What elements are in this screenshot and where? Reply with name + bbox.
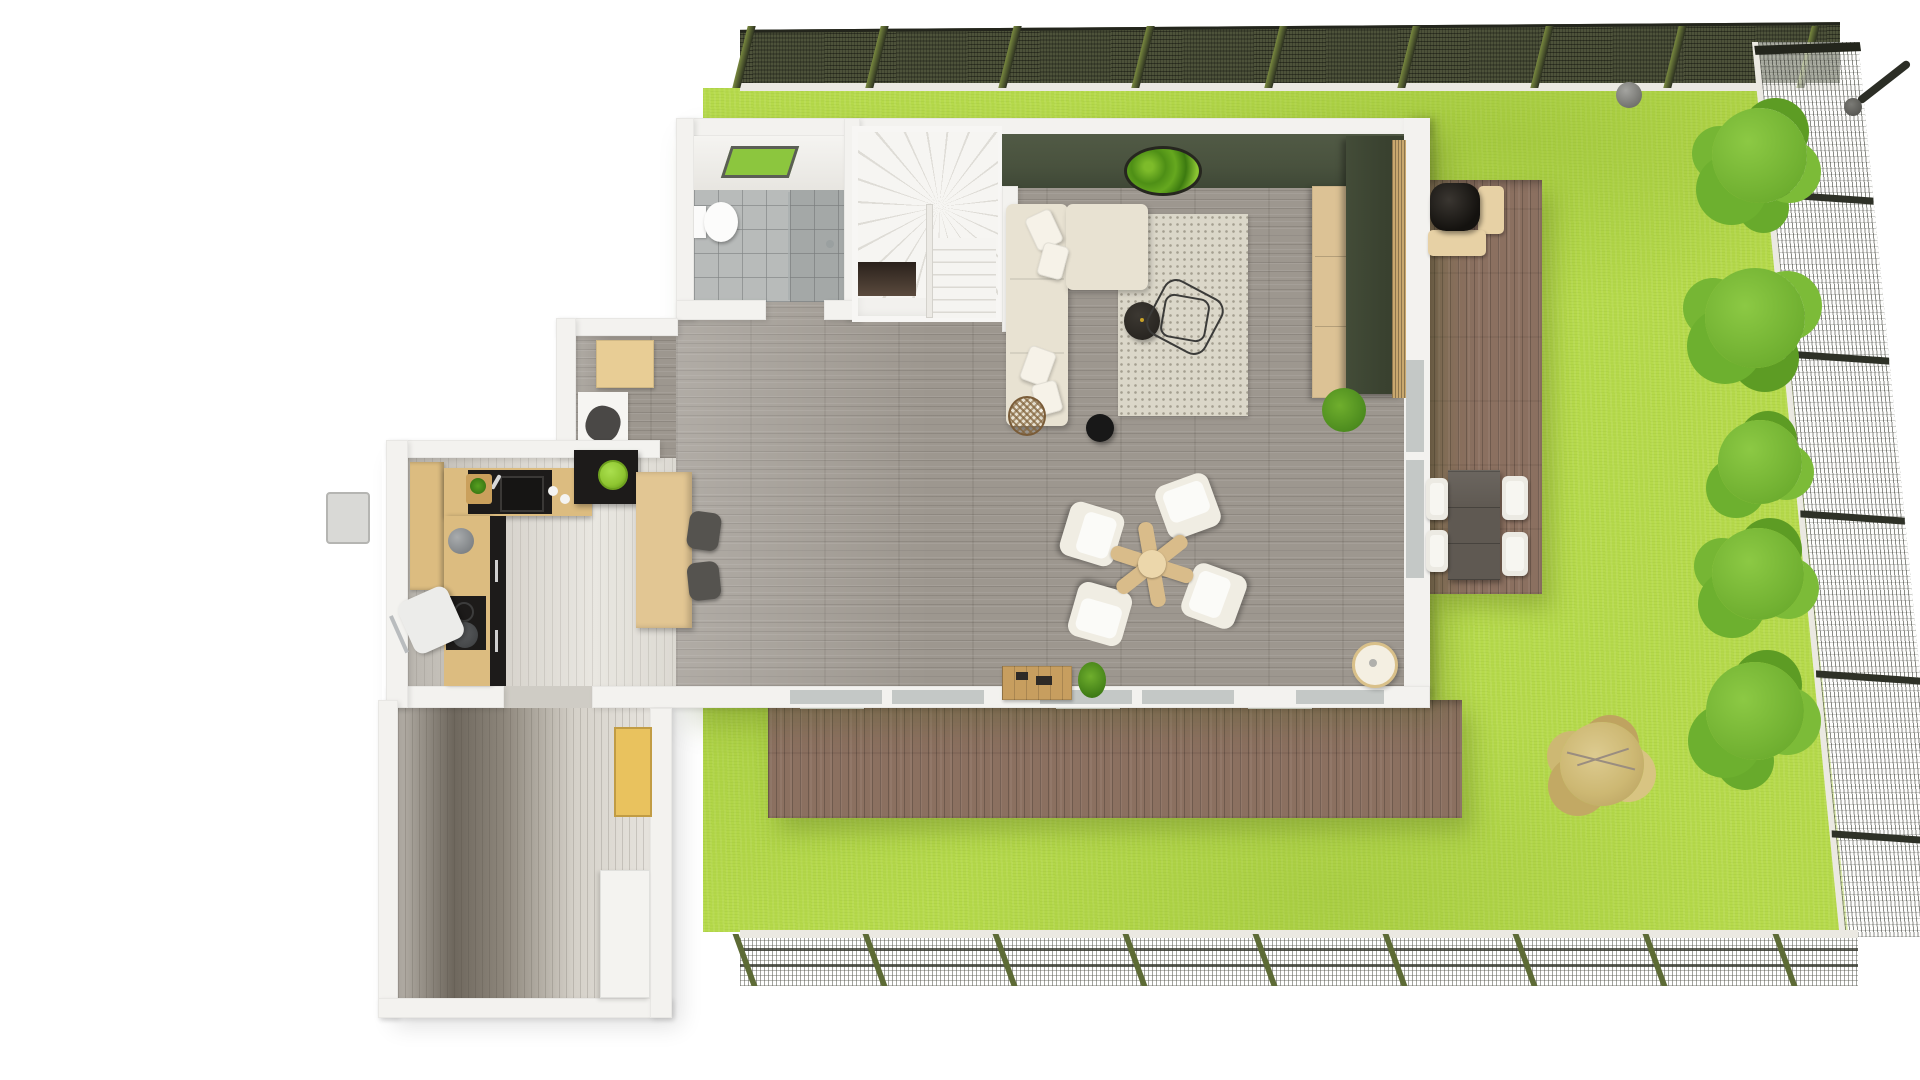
crate-table (1002, 666, 1072, 700)
fence-rail (740, 964, 1858, 967)
kamado-grill (1430, 183, 1480, 231)
sofa-chaise (1066, 204, 1148, 290)
shrub (1705, 268, 1805, 368)
dining-chair (1426, 530, 1448, 572)
hallway-right-wall (650, 708, 672, 1018)
crate-item (1036, 676, 1052, 685)
potted-plant (1322, 388, 1366, 432)
pole-cap (1844, 98, 1862, 116)
slat-wall-strip (1392, 140, 1406, 398)
fence-post (998, 26, 1021, 88)
chair-seat (1430, 483, 1444, 515)
fence-post (1800, 510, 1905, 524)
garden-sphere (1616, 82, 1642, 108)
cup (560, 494, 570, 504)
fence-post (733, 934, 758, 986)
stair-straight-steps (932, 238, 996, 318)
fence-post (1754, 42, 1861, 55)
hallway-left-wall (378, 700, 398, 1018)
herbs (470, 478, 486, 494)
fence-post (1773, 934, 1798, 986)
fence-rail (740, 948, 1858, 951)
shower-drain (826, 240, 834, 248)
fence-post (1131, 26, 1154, 88)
rattan-sphere (1008, 396, 1046, 436)
cup (548, 486, 558, 496)
fence-post (1383, 934, 1408, 986)
chair-seat (1506, 481, 1524, 515)
cabinet-handle (495, 560, 498, 582)
hallway-cabinet (600, 870, 650, 998)
fence-post (1785, 350, 1890, 364)
stair-rail (926, 204, 933, 318)
living-accent-wall (1002, 134, 1404, 188)
front-terrace-deck (768, 700, 1462, 818)
bar-stool (686, 510, 723, 552)
dry-shrub (1560, 722, 1644, 806)
wire-coffee-table-inner (1159, 292, 1212, 343)
pendant-lamp (1086, 414, 1114, 442)
grill-bench-side (1478, 186, 1504, 234)
shrub (1706, 662, 1804, 760)
shrub (1718, 420, 1802, 504)
bathroom-left-wall (676, 118, 694, 320)
alcove-bench (596, 340, 654, 388)
chair-seat (1430, 535, 1444, 567)
bottom-fence (740, 930, 1858, 988)
shower-glass (788, 192, 790, 300)
dining-chair (1502, 532, 1528, 576)
fence-post (865, 26, 888, 88)
staircase (852, 126, 1002, 322)
fence-post (1816, 670, 1920, 684)
table-center (1138, 550, 1166, 578)
crate-item (1016, 672, 1028, 680)
fence-post (993, 934, 1018, 986)
heat-pump-unit (326, 492, 370, 544)
green-bowl (598, 460, 628, 490)
fence-post (1264, 26, 1287, 88)
bottom-fence-mesh (740, 938, 1858, 986)
small-plant (1078, 662, 1106, 698)
right-wall-window (1406, 360, 1424, 452)
grill-bench-bottom (1428, 230, 1486, 256)
floor-lamp (1352, 642, 1398, 688)
fence-post (1397, 26, 1420, 88)
toilet-bowl (704, 202, 738, 242)
right-wall-window (1406, 460, 1424, 578)
cabinet-handle (495, 630, 498, 652)
outdoor-dining-table (1448, 470, 1500, 580)
shrub (1712, 108, 1807, 203)
shrub (1712, 528, 1804, 620)
propeller-table (1106, 512, 1198, 616)
dining-chair (1426, 478, 1448, 520)
pantry-cabinet (410, 462, 444, 590)
sliding-window-pane (1296, 690, 1384, 704)
sliding-window-pane (1142, 690, 1234, 704)
hallway-shelf (614, 727, 652, 817)
stairwell-void (858, 262, 916, 296)
cabinet-fronts (490, 516, 506, 686)
kitchen-sink (500, 476, 544, 512)
branch (1567, 752, 1635, 771)
fence-post (732, 26, 755, 88)
dining-chair (1502, 476, 1528, 520)
hall-west-wall (556, 318, 576, 458)
moss-wall-art (1124, 146, 1202, 196)
skylight (721, 146, 799, 178)
bottom-fence-curb (740, 930, 1858, 938)
kettle (448, 528, 474, 554)
top-fence-posts (740, 24, 1840, 90)
fence-post (1643, 934, 1668, 986)
fence-post (1513, 934, 1538, 986)
leaning-pole (1856, 59, 1911, 105)
gold-accent (1140, 318, 1144, 322)
sliding-window-pane (892, 690, 984, 704)
fence-post (1832, 830, 1920, 844)
doorway-threshold (504, 686, 592, 708)
bar-table (636, 472, 692, 628)
lamp-center (1369, 659, 1377, 667)
bar-stool (686, 560, 722, 601)
fence-post (863, 934, 888, 986)
fence-post (1123, 934, 1148, 986)
fence-post (1530, 26, 1553, 88)
fence-post (1253, 934, 1278, 986)
bathroom-bottom-wall-left (676, 300, 766, 320)
chair-seat (1506, 537, 1524, 571)
sliding-window-pane (790, 690, 882, 704)
kitchen-left-wall (386, 440, 408, 708)
hallway-bottom-wall (378, 998, 672, 1018)
shower-zone (790, 190, 844, 302)
fence-post (1663, 26, 1686, 88)
floorplan-scene (0, 0, 1920, 1080)
